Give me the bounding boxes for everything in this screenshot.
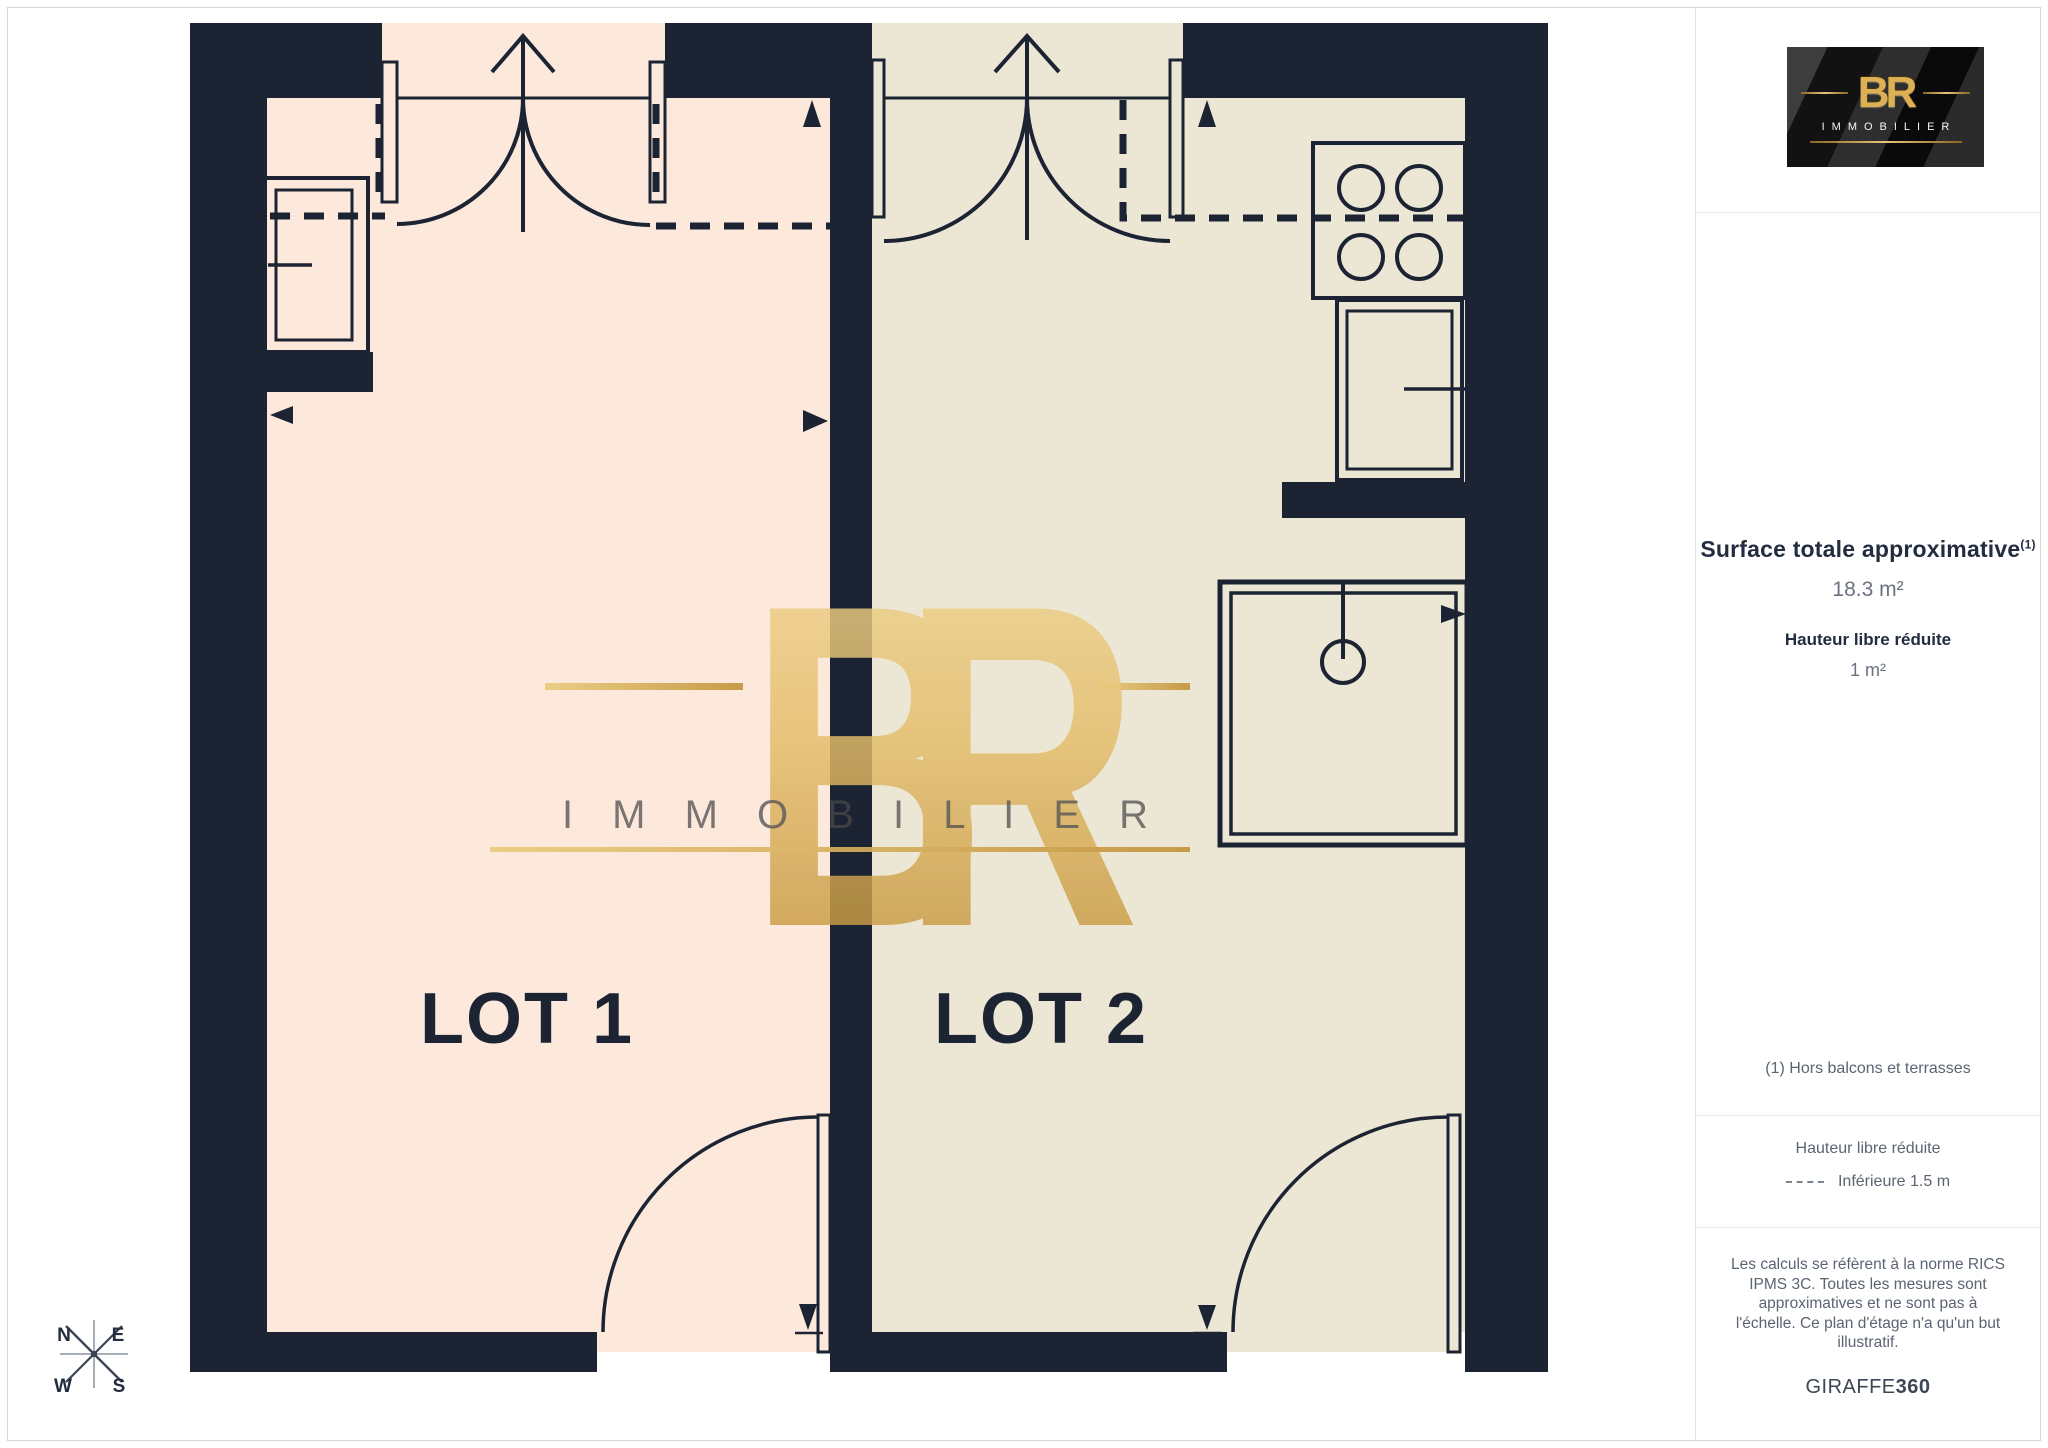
legend-title: Hauteur libre réduite (1695, 1140, 2041, 1158)
logo-gold-line-right (1923, 92, 1970, 94)
compass-icon: N E W S (54, 1320, 128, 1397)
svg-text:N: N (57, 1325, 71, 1346)
sidebar-separator (1695, 8, 1696, 1440)
dashed-line-icon (1786, 1181, 1824, 1183)
logo-name: IMMOBILIER (1815, 121, 1957, 133)
reduced-height-title: Hauteur libre réduite (1695, 630, 2041, 650)
surface-title: Surface totale approximative(1) (1695, 536, 2041, 563)
legend-row: Inférieure 1.5 m (1695, 1173, 2041, 1191)
surface-footnote-ref: (1) (2020, 537, 2035, 551)
lot1-label: LOT 1 (420, 979, 634, 1059)
surface-value: 18.3 m² (1695, 578, 2041, 602)
footnote: (1) Hors balcons et terrasses (1695, 1060, 2041, 1078)
svg-text:W: W (54, 1376, 72, 1397)
svg-text:S: S (113, 1376, 126, 1397)
svg-text:E: E (112, 1325, 125, 1346)
disclaimer: Les calculs se réfèrent à la norme RICS … (1695, 1255, 2041, 1353)
watermark-name: I M M O B I L I E R (562, 793, 1162, 837)
logo-monogram: BR (1848, 71, 1924, 115)
reduced-height-value: 1 m² (1695, 660, 2041, 681)
sidebar-divider-2 (1696, 1115, 2041, 1116)
agency-logo: BR IMMOBILIER (1787, 47, 1984, 167)
giraffe360-brand: GIRAFFE360 (1695, 1376, 2041, 1399)
logo-gold-line-left (1801, 92, 1848, 94)
legend-value: Inférieure 1.5 m (1838, 1173, 1950, 1191)
logo-gold-underline (1810, 141, 1962, 143)
floorplan-page: { "colors":{"wall":"#1C2433","lot1_fill"… (0, 0, 2048, 1448)
sidebar-divider-3 (1696, 1227, 2041, 1228)
sidebar-divider-1 (1696, 212, 2041, 213)
floorplan-drawing: LOT 1 LOT 2 BR I M M O B I L I E R N E W… (0, 0, 1695, 1448)
